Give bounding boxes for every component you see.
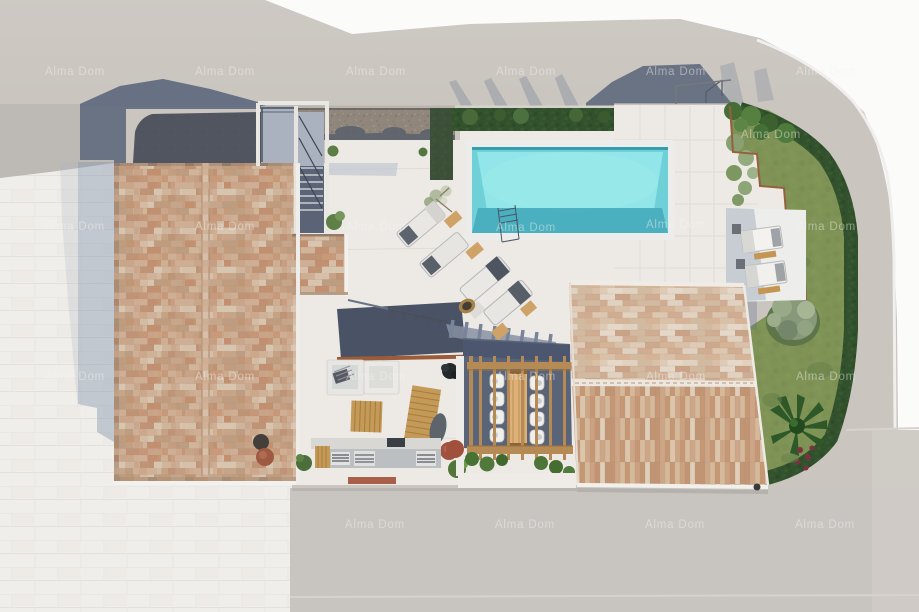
svg-text:Alma Dom: Alma Dom [195, 66, 255, 78]
svg-text:Alma Dom: Alma Dom [796, 221, 856, 233]
svg-text:Alma Dom: Alma Dom [496, 222, 556, 234]
svg-text:Alma Dom: Alma Dom [646, 66, 706, 78]
svg-text:Alma Dom: Alma Dom [496, 66, 556, 78]
svg-text:Alma Dom: Alma Dom [346, 66, 406, 78]
svg-text:Alma Dom: Alma Dom [741, 129, 801, 141]
svg-text:Alma Dom: Alma Dom [795, 519, 855, 531]
svg-text:Alma Dom: Alma Dom [645, 519, 705, 531]
svg-text:Alma Dom: Alma Dom [45, 371, 105, 383]
svg-text:Alma Dom: Alma Dom [495, 519, 555, 531]
svg-text:Alma Dom: Alma Dom [45, 221, 105, 233]
svg-text:Alma Dom: Alma Dom [346, 371, 406, 383]
svg-text:Alma Dom: Alma Dom [195, 221, 255, 233]
svg-text:Alma Dom: Alma Dom [796, 371, 856, 383]
svg-text:Alma Dom: Alma Dom [345, 519, 405, 531]
svg-text:Alma Dom: Alma Dom [45, 66, 105, 78]
svg-text:Alma Dom: Alma Dom [195, 371, 255, 383]
svg-text:Alma Dom: Alma Dom [796, 66, 856, 78]
svg-text:Alma Dom: Alma Dom [646, 371, 706, 383]
svg-text:Alma Dom: Alma Dom [496, 371, 556, 383]
svg-text:Alma Dom: Alma Dom [646, 219, 706, 231]
svg-text:Alma Dom: Alma Dom [346, 221, 406, 233]
